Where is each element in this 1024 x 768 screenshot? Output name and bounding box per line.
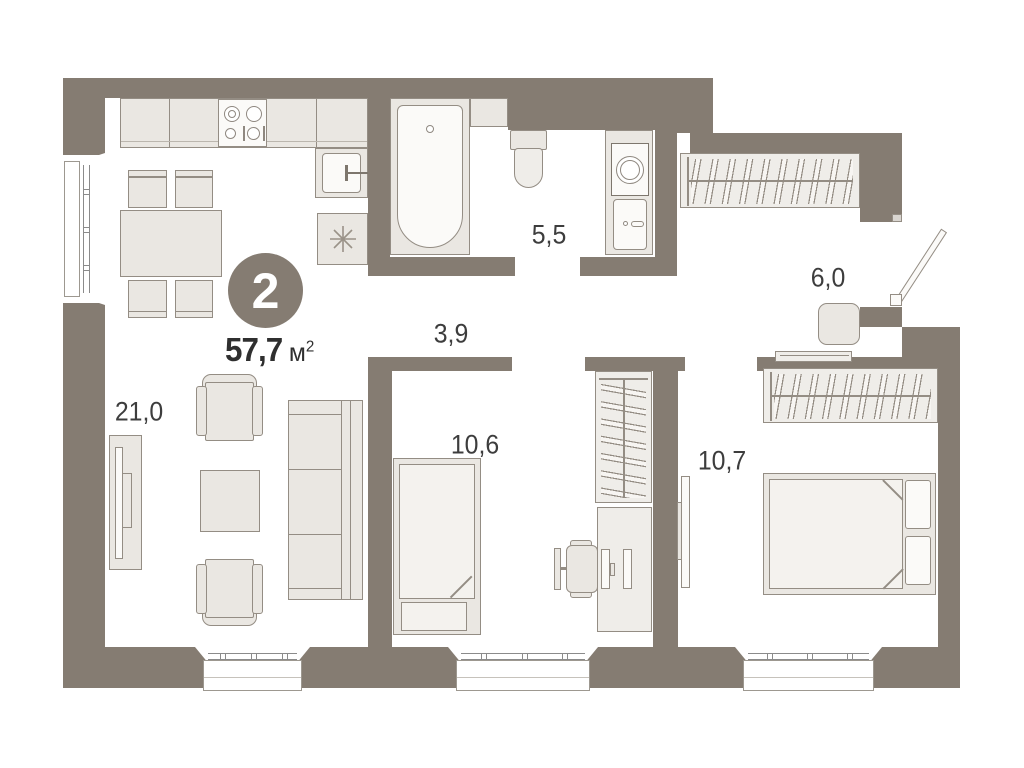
console-shelf <box>775 351 852 362</box>
sofa-cushion-line <box>289 534 341 535</box>
total-area-value: 57,7 <box>225 331 282 369</box>
wall-bathroom-right <box>655 130 677 276</box>
tv-icon <box>681 476 690 588</box>
sofa-back-line <box>341 401 342 599</box>
desk-accessory <box>623 549 632 589</box>
chair-base <box>554 548 561 590</box>
sofa-armrest-line <box>289 414 341 415</box>
sink-faucet <box>631 221 644 227</box>
sofa-back-line <box>350 401 351 599</box>
toilet-icon <box>510 130 547 188</box>
rooms-count: 2 <box>252 262 280 320</box>
room-label-hall: 3,9 <box>434 319 469 350</box>
dining-chair <box>128 280 167 318</box>
wall-entry-right <box>860 307 902 327</box>
window-living-room <box>195 647 310 693</box>
wardrobe-rail <box>689 180 853 182</box>
desk <box>597 507 652 632</box>
bathtub-drain <box>426 125 434 133</box>
window-bedroom2 <box>735 647 882 693</box>
window-mullion <box>481 653 487 660</box>
bed-mattress <box>769 479 903 589</box>
window-mullion <box>83 265 90 271</box>
entrance-door-strike <box>892 214 902 222</box>
dining-chair <box>128 170 167 208</box>
toilet-tank <box>510 130 547 150</box>
wardrobe-rail <box>772 395 931 397</box>
bed-mattress <box>399 464 475 599</box>
entrance-door-hinge <box>890 294 902 306</box>
window-living-left <box>63 153 105 305</box>
wall-bedroom1-bedroom2 <box>653 371 678 647</box>
office-chair <box>552 540 598 598</box>
wall-bedroom1-left <box>368 371 392 647</box>
monitor-icon <box>601 549 610 589</box>
window-mullion <box>847 653 853 660</box>
window-sill <box>64 161 80 297</box>
window-mullion <box>807 653 813 660</box>
console-line <box>780 355 849 356</box>
dishwasher-icon <box>317 213 368 265</box>
window-sill <box>456 660 590 691</box>
chair-seat <box>566 545 598 593</box>
faucet-icon <box>347 172 368 174</box>
entrance-door-leaf <box>895 229 947 303</box>
entry-wardrobe <box>680 153 860 208</box>
coffee-table <box>200 470 260 532</box>
faucet-handle <box>345 165 348 181</box>
room-label-living-kitchen: 21,0 <box>115 397 163 428</box>
sofa-cushion-line <box>289 469 341 470</box>
pillow <box>905 480 931 529</box>
window-mullion <box>767 653 773 660</box>
washing-machine-icon <box>611 143 649 196</box>
room-label-bedroom-small: 10,6 <box>451 430 499 461</box>
burner-bracket <box>243 126 245 141</box>
chair-back <box>129 311 166 313</box>
wall-bathroom-bottom-left <box>368 257 515 276</box>
bed-single <box>393 458 481 635</box>
chair-back <box>176 176 212 178</box>
wall-top-corner <box>660 98 713 133</box>
wall-hall-bottom-left <box>368 357 512 371</box>
burner <box>225 128 236 139</box>
burner <box>247 127 260 140</box>
bathtub <box>390 98 470 255</box>
total-area-label: 57,7 м2 <box>225 331 314 369</box>
sink-drain <box>623 221 628 226</box>
burner-inner <box>228 110 236 118</box>
bed-footboard <box>401 602 467 631</box>
counter-divider <box>316 99 317 147</box>
armchair <box>196 556 263 626</box>
monitor-stand <box>610 563 615 576</box>
window-mullion <box>83 227 90 233</box>
room-label-bathroom: 5,5 <box>532 220 567 251</box>
wall-exterior-left-upper <box>63 98 105 155</box>
total-area-unit: м2 <box>289 337 314 368</box>
armchair-seat <box>205 382 254 441</box>
tv-icon <box>115 447 123 559</box>
bed-double <box>763 473 936 595</box>
pillow <box>905 536 931 585</box>
window-mullion <box>251 653 257 660</box>
hangers-icon <box>774 374 931 419</box>
bedroom1-wardrobe <box>595 371 652 503</box>
chair-back <box>176 311 212 313</box>
wall-right-step <box>902 327 960 371</box>
window-mullion <box>83 189 90 195</box>
rooms-count-badge: 2 <box>228 253 303 328</box>
bathroom-sink-icon <box>613 199 647 250</box>
burner <box>246 106 262 122</box>
armchair-seat <box>205 559 254 618</box>
tv-console <box>109 435 142 570</box>
wardrobe-end <box>687 157 689 206</box>
chair-back <box>129 176 166 178</box>
armchair-armrest <box>252 564 263 614</box>
dining-table <box>120 210 222 277</box>
washer-drum-inner <box>620 160 640 180</box>
dining-chair <box>175 170 213 208</box>
laundry-counter <box>605 130 653 255</box>
wall-entry-block <box>860 153 902 222</box>
window-bedroom1 <box>448 647 598 693</box>
wall-exterior-right <box>938 371 960 647</box>
room-label-bedroom-master: 10,7 <box>698 446 746 477</box>
floor-plan: 2 57,7 м2 21,0 5,5 3,9 6,0 10,6 10,7 <box>0 0 1024 768</box>
wall-kitchen-bathroom <box>368 98 390 257</box>
toilet-bowl <box>514 148 543 188</box>
window-sill <box>203 660 302 691</box>
wall-exterior-left-lower <box>63 303 105 688</box>
armchair-armrest <box>252 386 263 436</box>
wall-entry-top <box>690 133 902 153</box>
window-mullion <box>282 653 288 660</box>
window-mullion <box>562 653 568 660</box>
armchair-armrest <box>196 386 207 436</box>
sofa-armrest-line <box>289 588 341 589</box>
bedroom2-wardrobe <box>763 368 938 423</box>
armchair-armrest <box>196 564 207 614</box>
window-mullion <box>522 653 528 660</box>
hangers-icon <box>691 159 853 204</box>
armchair <box>196 374 263 443</box>
window-sill <box>743 660 874 691</box>
counter-divider <box>169 99 170 147</box>
wall-hall-bottom-right <box>585 357 685 371</box>
stove-icon <box>218 99 267 147</box>
sofa <box>288 400 363 600</box>
window-mullion <box>220 653 226 660</box>
burner-bracket <box>263 126 265 141</box>
wardrobe-end <box>770 372 772 421</box>
room-label-entry: 6,0 <box>811 263 846 294</box>
wardrobe-rail <box>623 380 625 498</box>
wall-exterior-top <box>63 78 713 98</box>
kitchen-sink-cabinet <box>315 148 368 198</box>
dining-chair <box>175 280 213 318</box>
pouf <box>818 303 860 345</box>
bathroom-shelf <box>470 98 508 127</box>
